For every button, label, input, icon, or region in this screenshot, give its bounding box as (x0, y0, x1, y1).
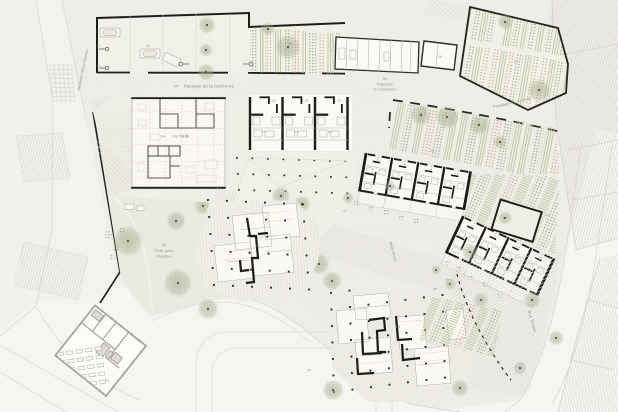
svg-text:04: 04 (161, 135, 165, 139)
svg-text:05: 05 (383, 77, 387, 81)
svg-text:14: 14 (262, 130, 266, 134)
svg-text:17: 17 (97, 44, 101, 48)
svg-text:La Halle: La Halle (173, 134, 190, 139)
svg-text:13: 13 (328, 130, 332, 134)
svg-text:25: 25 (430, 149, 434, 153)
svg-text:04: 04 (546, 213, 550, 217)
svg-text:15: 15 (396, 325, 400, 329)
svg-text:21: 21 (256, 244, 260, 248)
svg-text:Passage de la marbrerie: Passage de la marbrerie (184, 84, 235, 89)
svg-text:17: 17 (97, 64, 101, 68)
svg-text:24: 24 (514, 60, 518, 64)
svg-text:10: 10 (105, 379, 109, 383)
svg-text:23: 23 (337, 99, 341, 103)
svg-text:09: 09 (307, 368, 311, 372)
svg-text:23: 23 (305, 99, 309, 103)
svg-text:04: 04 (174, 85, 178, 89)
svg-text:07: 07 (343, 209, 347, 213)
svg-text:26: 26 (438, 55, 442, 59)
svg-text:16: 16 (146, 44, 150, 48)
svg-text:12: 12 (295, 130, 299, 134)
svg-text:08: 08 (433, 287, 437, 291)
svg-text:23: 23 (272, 99, 276, 103)
